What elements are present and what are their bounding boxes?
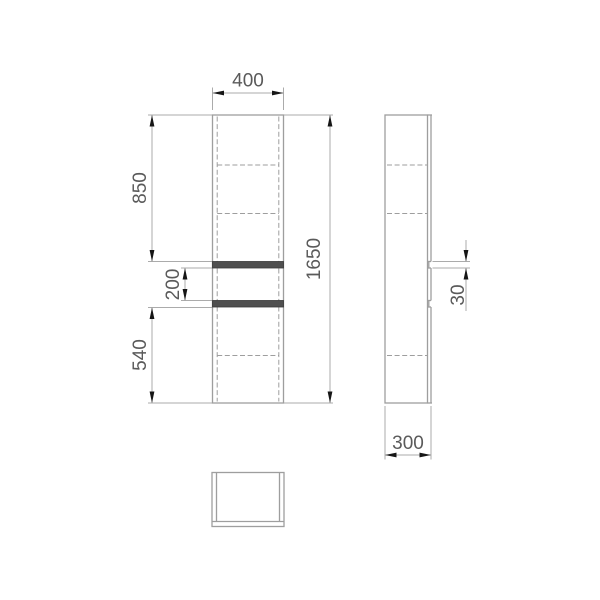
top-view (212, 473, 284, 527)
dimension-label-handle-height: 30 (448, 284, 469, 305)
front-view: 400 850 200 540 1650 (130, 71, 333, 404)
top-outline (212, 473, 284, 527)
dimension-label-upper-door: 850 (130, 172, 151, 204)
lower-handle-recess (213, 301, 284, 308)
dimension-label-handle-spacing: 200 (163, 269, 184, 301)
dimension-label-depth: 300 (392, 433, 424, 454)
side-view: 30 300 (385, 115, 470, 460)
technical-drawing-canvas: 400 850 200 540 1650 30 300 (0, 0, 600, 600)
front-carcass-outline (213, 115, 284, 403)
cabinet-drawing: 400 850 200 540 1650 30 300 (0, 0, 600, 600)
dimension-label-lower-door: 540 (130, 339, 151, 371)
side-carcass-outline (385, 115, 428, 403)
dimension-label-height: 1650 (304, 238, 325, 280)
dimension-label-width: 400 (232, 71, 264, 92)
upper-handle-recess (213, 262, 284, 269)
